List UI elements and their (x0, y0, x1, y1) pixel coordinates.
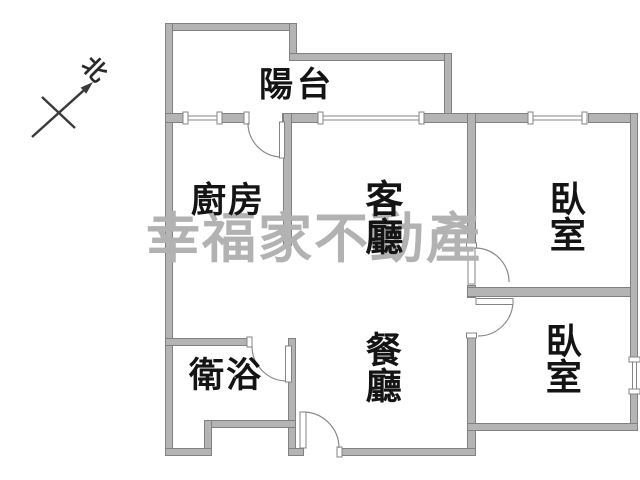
wall-segment (420, 113, 532, 123)
door-bedroom-south (467, 299, 514, 339)
wall-segment (218, 113, 248, 123)
window (183, 112, 222, 124)
wall-segment (467, 337, 476, 456)
wall-segment (165, 448, 212, 456)
room-label-bedroom-south: 臥室 (541, 322, 579, 394)
window (629, 357, 640, 394)
wall-segment (165, 338, 248, 346)
door-balcony-kitchen (244, 112, 285, 158)
room-label-kitchen: 廚房 (191, 183, 265, 220)
wall-segment (204, 420, 296, 428)
window (318, 112, 424, 124)
wall-segment (467, 423, 638, 431)
wall-segment (339, 448, 476, 456)
room-label-living-room: 客廳 (360, 179, 400, 255)
room-label-bedroom-north: 臥室 (545, 180, 583, 252)
wall-segment (288, 448, 304, 456)
wall-segment (467, 287, 638, 297)
room-label-bathroom: 衛浴 (189, 358, 263, 395)
room-label-balcony: 陽台 (259, 68, 335, 104)
door-entry (300, 412, 342, 457)
room-label-dining-room: 餐廳 (361, 331, 399, 403)
wall-segment (289, 53, 452, 61)
wall-segment (288, 338, 296, 456)
north-compass: 北 (12, 42, 127, 154)
window (528, 112, 587, 124)
wall-segment (165, 23, 295, 31)
floor-plan-canvas: 幸福家不動產 陽台 廚房 客廳 餐廳 衛浴 臥室 臥室 北 (0, 0, 640, 480)
wall-segment (630, 113, 638, 360)
wall-segment (165, 113, 187, 123)
